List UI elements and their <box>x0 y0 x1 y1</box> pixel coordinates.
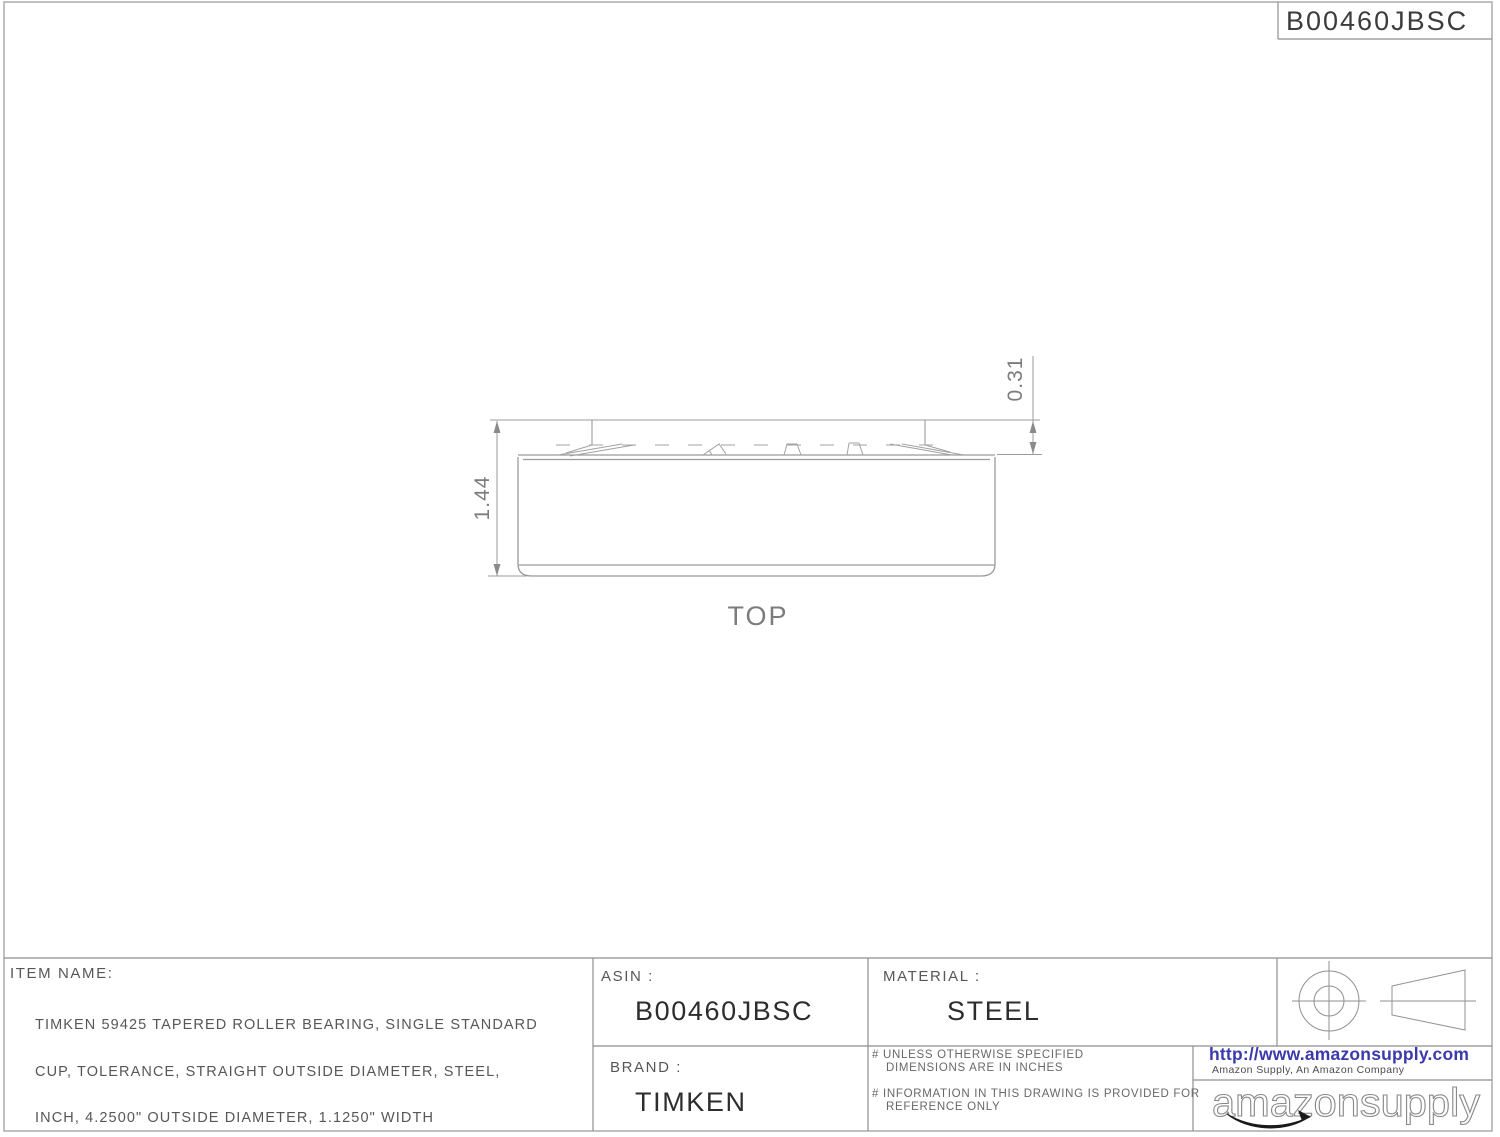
material-value: STEEL <box>947 996 1041 1027</box>
sheet-border <box>4 2 1492 1131</box>
projection-symbol-icon <box>1292 961 1476 1040</box>
company-tagline: Amazon Supply, An Amazon Company <box>1212 1064 1404 1076</box>
note-units-line-2: DIMENSIONS ARE IN INCHES <box>886 1062 1063 1074</box>
dimension-arrowheads <box>494 421 1037 576</box>
note-units-line-1: # UNLESS OTHERWISE SPECIFIED <box>872 1049 1084 1061</box>
drawing-sheet: amazonsupply B00460JBSC TOP 1.44 0.31 IT… <box>0 0 1500 1137</box>
brand-value: TIMKEN <box>635 1087 747 1118</box>
dimension-total-width: 1.44 <box>471 462 495 534</box>
amazon-swoosh-arrowhead-icon <box>1298 1110 1311 1121</box>
bearing-cup-outline <box>518 455 995 576</box>
item-name-label: ITEM NAME: <box>10 965 114 982</box>
view-label: TOP <box>707 601 809 632</box>
amazonsupply-url-link[interactable]: http://www.amazonsupply.com <box>1209 1044 1469 1065</box>
dimension-cone-width: 0.31 <box>1004 343 1028 415</box>
item-name-text: TIMKEN 59425 TAPERED ROLLER BEARING, SIN… <box>35 987 538 1137</box>
asin-label: ASIN : <box>601 968 654 985</box>
note-reference-line-2: REFERENCE ONLY <box>886 1101 1000 1113</box>
brand-label: BRAND : <box>610 1059 682 1076</box>
roller-cage-detail <box>556 443 964 456</box>
item-name-line-1: TIMKEN 59425 TAPERED ROLLER BEARING, SIN… <box>35 1018 538 1034</box>
sheet-number: B00460JBSC <box>1286 6 1468 37</box>
dimension-lines <box>488 356 1042 576</box>
note-reference-line-1: # INFORMATION IN THIS DRAWING IS PROVIDE… <box>872 1088 1200 1100</box>
material-label: MATERIAL : <box>883 968 981 985</box>
item-name-line-3: INCH, 4.2500" OUTSIDE DIAMETER, 1.1250" … <box>35 1111 538 1127</box>
amazon-swoosh-icon <box>1227 1114 1309 1128</box>
amazonsupply-logo-text: amazonsupply <box>1212 1081 1480 1125</box>
bearing-cone-backface <box>592 420 925 445</box>
drawing-canvas: amazonsupply <box>0 0 1500 1137</box>
amazonsupply-logo: amazonsupply <box>1212 1081 1480 1128</box>
asin-value: B00460JBSC <box>635 996 813 1027</box>
item-name-line-2: CUP, TOLERANCE, STRAIGHT OUTSIDE DIAMETE… <box>35 1065 538 1081</box>
